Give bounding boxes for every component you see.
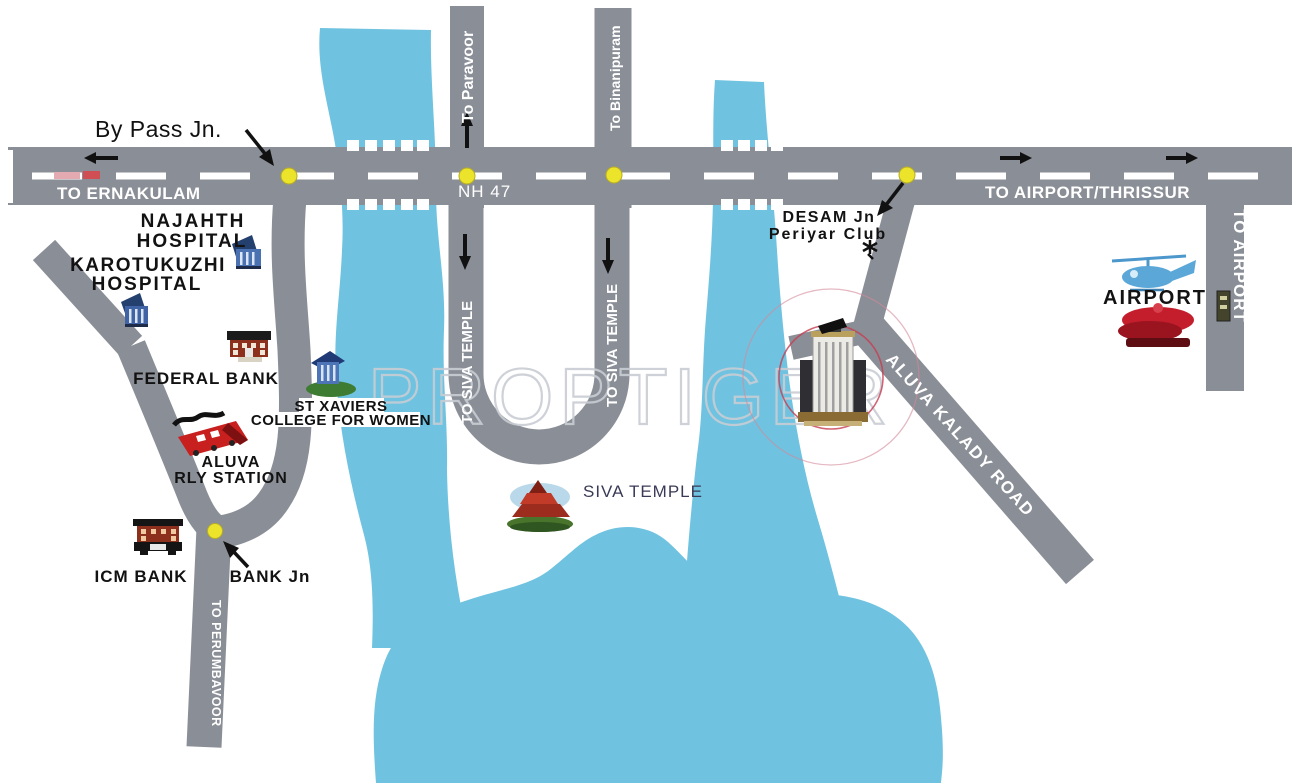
to-binanipuram-label: To Binanipuram (607, 25, 623, 131)
road-end-cap (6, 150, 13, 203)
airport-label: AIRPORT (1103, 287, 1207, 309)
airport-building-icon (1118, 303, 1194, 347)
binanipuram-junction-dot (606, 167, 622, 183)
bank-junction-dot (208, 524, 223, 539)
st-xaviers-label-2: COLLEGE FOR WOMEN (251, 412, 431, 429)
bypass-jn-label: By Pass Jn. (95, 116, 222, 142)
periyar-club-label: Periyar Club (769, 226, 887, 243)
icm-bank-icon (133, 519, 183, 555)
to-paravoor-label: To Paravoor (460, 31, 477, 123)
desam-junction-dot (899, 167, 915, 183)
karotukuzhi-hospital-icon (121, 293, 148, 327)
siva-temple-icon (507, 480, 573, 532)
to-airport-label: TO AIRPORT (1230, 209, 1249, 323)
federal-bank-label: FEDERAL BANK (133, 369, 279, 388)
to-ernakulam-label: TO ERNAKULAM (57, 184, 201, 203)
federal-bank-icon (227, 331, 271, 362)
aluva-rly-label-1: ALUVA (202, 454, 261, 471)
to-airport-thrissur-label: TO AIRPORT/THRISSUR (985, 183, 1190, 202)
airport-helicopter-icon (1112, 256, 1196, 290)
to-perumbavoor-label: TO PERUMBAVOOR (209, 600, 223, 727)
najahth-hospital-label-1: NAJAHTH (141, 211, 246, 232)
nh47-label: NH 47 (458, 182, 511, 201)
river-lower-basin (374, 527, 943, 783)
to-siva-temple-left-label: TO SIVA TEMPLE (459, 301, 476, 424)
siva-temple-label: SIVA TEMPLE (583, 482, 703, 501)
airport-road-vehicle-icon (1217, 291, 1230, 321)
to-siva-temple-right-label: TO SIVA TEMPLE (604, 284, 621, 407)
map-canvas: PROPTIGER (0, 0, 1300, 783)
pink-dash-2 (83, 171, 100, 179)
karotukuzhi-hospital-label-1: KAROTUKUZHI (70, 255, 226, 276)
river-left-channel (319, 28, 470, 648)
bank-jn-label: BANK Jn (230, 567, 311, 586)
najahth-hospital-label-2: HOSPITAL (137, 231, 248, 252)
desam-jn-label: DESAM Jn (783, 209, 876, 226)
bypass-junction-dot (281, 168, 297, 184)
pink-dash-1 (54, 172, 80, 179)
aluva-kalady-road-label: ALUVA KALADY ROAD (882, 350, 1038, 520)
aluva-rly-label-2: RLY STATION (174, 470, 288, 487)
karotukuzhi-hospital-label-2: HOSPITAL (92, 274, 203, 295)
icm-bank-label: ICM BANK (95, 567, 188, 586)
